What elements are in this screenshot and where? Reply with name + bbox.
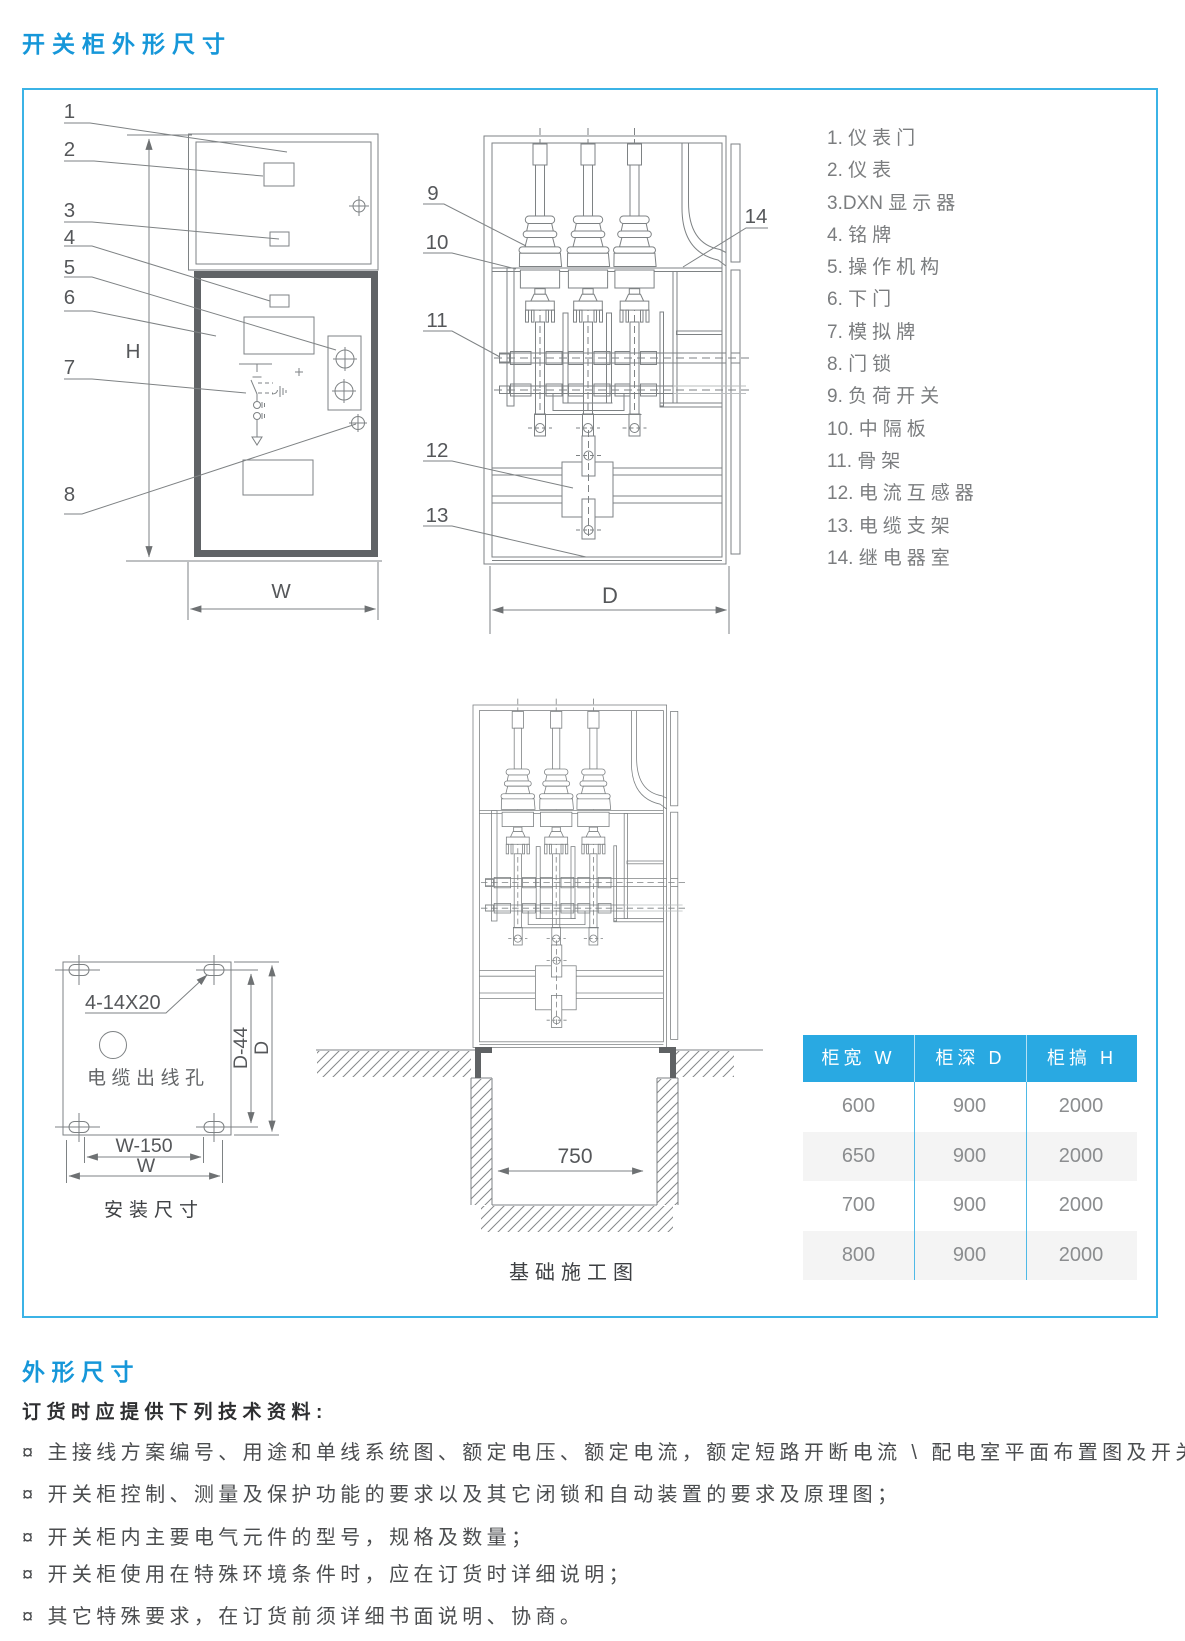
svg-text:3: 3 bbox=[64, 199, 75, 222]
svg-text:5: 5 bbox=[64, 256, 75, 279]
svg-text:H: H bbox=[126, 340, 141, 363]
svg-text:基础施工图: 基础施工图 bbox=[509, 1261, 639, 1284]
svg-text:9: 9 bbox=[427, 182, 438, 205]
svg-text:W-150: W-150 bbox=[115, 1135, 172, 1157]
svg-text:D: D bbox=[251, 1041, 273, 1055]
svg-text:12: 12 bbox=[426, 439, 449, 462]
svg-text:2: 2 bbox=[64, 138, 75, 161]
svg-text:电缆出线孔: 电缆出线孔 bbox=[87, 1067, 210, 1089]
svg-text:11: 11 bbox=[426, 309, 447, 332]
svg-text:1: 1 bbox=[64, 100, 75, 123]
svg-text:8: 8 bbox=[64, 483, 75, 506]
svg-text:7: 7 bbox=[64, 356, 75, 379]
svg-text:14: 14 bbox=[745, 205, 768, 228]
svg-text:D: D bbox=[602, 583, 618, 608]
svg-text:6: 6 bbox=[64, 286, 75, 309]
svg-text:750: 750 bbox=[557, 1145, 592, 1168]
svg-text:4-14X20: 4-14X20 bbox=[85, 992, 161, 1014]
svg-text:10: 10 bbox=[426, 231, 449, 254]
svg-text:D-44: D-44 bbox=[230, 1027, 252, 1069]
svg-text:W: W bbox=[137, 1155, 156, 1177]
svg-text:13: 13 bbox=[426, 504, 449, 527]
svg-text:安装尺寸: 安装尺寸 bbox=[104, 1199, 204, 1221]
svg-text:W: W bbox=[271, 580, 291, 603]
